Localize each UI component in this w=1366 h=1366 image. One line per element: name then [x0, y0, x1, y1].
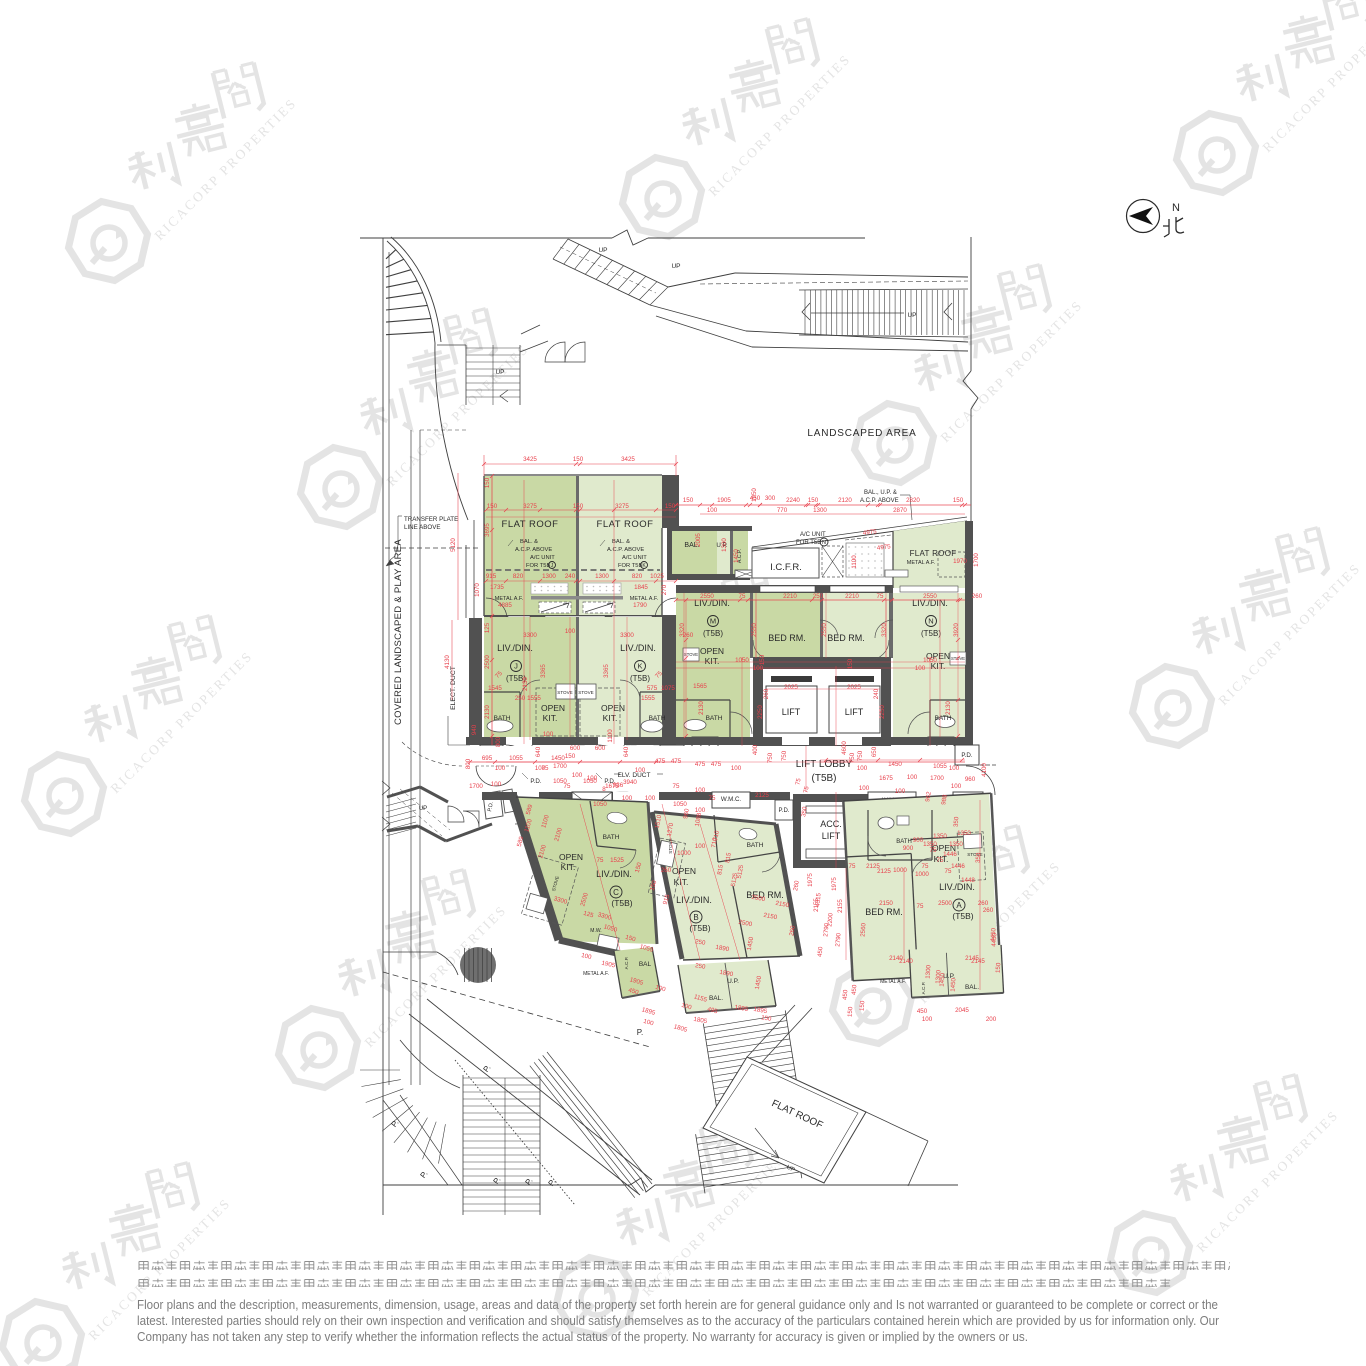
svg-text:3695: 3695 — [484, 523, 491, 537]
svg-text:240: 240 — [873, 688, 880, 699]
svg-text:150: 150 — [847, 658, 854, 669]
svg-text:2155: 2155 — [837, 899, 844, 913]
svg-text:250: 250 — [813, 593, 824, 600]
svg-text:2045: 2045 — [955, 1007, 969, 1014]
svg-text:(T5B): (T5B) — [611, 898, 632, 908]
svg-text:100: 100 — [491, 781, 502, 788]
svg-text:FLAT ROOF: FLAT ROOF — [502, 519, 559, 530]
svg-text:2560: 2560 — [860, 922, 868, 937]
svg-text:800: 800 — [495, 736, 502, 747]
svg-text:3275: 3275 — [615, 503, 629, 510]
svg-text:1050: 1050 — [583, 778, 597, 785]
svg-text:650: 650 — [871, 746, 878, 757]
svg-text:100: 100 — [859, 785, 870, 792]
svg-text:3320: 3320 — [679, 623, 686, 637]
svg-text:260: 260 — [661, 867, 672, 874]
svg-text:BAL., U.P. &: BAL., U.P. & — [864, 490, 897, 496]
svg-text:4100: 4100 — [981, 763, 988, 777]
svg-text:100: 100 — [695, 787, 706, 794]
svg-text:OPEN: OPEN — [672, 866, 696, 876]
svg-text:1700: 1700 — [469, 783, 483, 790]
svg-text:350: 350 — [975, 852, 983, 863]
svg-text:2130: 2130 — [522, 677, 529, 691]
svg-text:STOVE: STOVE — [557, 690, 573, 695]
svg-text:2550: 2550 — [751, 623, 758, 637]
svg-text:1446: 1446 — [943, 851, 957, 858]
svg-text:P.D.: P.D. — [530, 778, 542, 785]
svg-text:(T5B): (T5B) — [812, 773, 837, 784]
svg-text:BED RM.: BED RM. — [865, 907, 903, 917]
svg-text:METAL A.F.: METAL A.F. — [907, 560, 936, 566]
svg-text:A.C.P. ABOVE: A.C.P. ABOVE — [860, 498, 899, 504]
svg-text:A/C UNIT: A/C UNIT — [800, 532, 826, 538]
svg-text:1450: 1450 — [950, 977, 958, 992]
svg-text:1970: 1970 — [953, 558, 967, 565]
svg-text:1450: 1450 — [551, 755, 565, 762]
svg-text:Floor plans and the descriptio: Floor plans and the description, measure… — [137, 1298, 1218, 1312]
svg-text:270: 270 — [661, 584, 668, 595]
svg-text:W.M.C.: W.M.C. — [721, 796, 742, 803]
svg-text:75: 75 — [673, 783, 680, 790]
svg-text:1075: 1075 — [661, 685, 675, 692]
svg-text:2025: 2025 — [784, 684, 798, 691]
svg-text:(T5B): (T5B) — [703, 629, 723, 638]
svg-text:1300: 1300 — [813, 507, 827, 514]
svg-text:2870: 2870 — [893, 507, 907, 514]
svg-text:4450: 4450 — [991, 932, 999, 947]
svg-text:1350: 1350 — [923, 841, 937, 848]
svg-text:100: 100 — [922, 1016, 933, 1023]
svg-text:TRANSFER PLATE: TRANSFER PLATE — [404, 516, 458, 523]
svg-text:P.D.: P.D. — [779, 808, 790, 814]
svg-text:75: 75 — [597, 857, 604, 864]
svg-text:1975: 1975 — [831, 877, 838, 891]
svg-text:640: 640 — [623, 746, 630, 757]
svg-text:BAL. &: BAL. & — [612, 539, 630, 545]
svg-text:2120: 2120 — [838, 497, 852, 504]
svg-text:(T5B): (T5B) — [921, 629, 941, 638]
svg-text:640: 640 — [535, 746, 542, 757]
svg-text:260: 260 — [978, 900, 989, 907]
svg-text:450: 450 — [851, 984, 859, 995]
svg-text:1555: 1555 — [641, 695, 655, 702]
svg-text:820: 820 — [632, 573, 643, 580]
svg-text:1300: 1300 — [595, 573, 609, 580]
svg-text:1700: 1700 — [973, 553, 980, 567]
svg-text:150: 150 — [484, 477, 491, 488]
svg-text:2550: 2550 — [700, 593, 714, 600]
svg-text:150: 150 — [953, 497, 964, 504]
svg-text:3920: 3920 — [953, 623, 960, 637]
svg-text:2820: 2820 — [906, 497, 920, 504]
svg-text:150: 150 — [683, 497, 694, 504]
svg-text:B: B — [693, 913, 698, 922]
svg-text:75: 75 — [930, 847, 937, 854]
svg-text:M.W.: M.W. — [590, 928, 601, 934]
svg-text:4600: 4600 — [841, 741, 848, 755]
svg-text:75: 75 — [922, 863, 929, 870]
svg-text:LIV./DIN.: LIV./DIN. — [497, 643, 533, 653]
svg-text:475: 475 — [671, 758, 682, 765]
svg-text:100: 100 — [622, 795, 633, 802]
svg-text:2125: 2125 — [755, 792, 769, 799]
svg-text:900: 900 — [913, 837, 924, 844]
svg-text:100: 100 — [857, 765, 868, 772]
svg-text:750: 750 — [857, 750, 864, 761]
svg-text:latest. Interested parties sho: latest. Interested parties should rely o… — [137, 1314, 1219, 1328]
svg-text:N: N — [822, 540, 826, 546]
svg-text:350: 350 — [953, 816, 961, 827]
svg-text:LIFT LOBBY: LIFT LOBBY — [796, 759, 853, 770]
svg-text:1545: 1545 — [488, 685, 502, 692]
svg-text:1700: 1700 — [553, 763, 567, 770]
svg-text:960: 960 — [965, 776, 976, 783]
svg-text:A: A — [956, 901, 962, 910]
svg-text:75: 75 — [937, 857, 944, 864]
svg-text:KIT.: KIT. — [543, 713, 558, 723]
svg-text:N: N — [928, 617, 933, 626]
svg-text:150: 150 — [487, 503, 498, 510]
svg-text:100: 100 — [495, 765, 506, 772]
svg-text:75: 75 — [877, 593, 884, 600]
svg-text:(T5B): (T5B) — [689, 923, 710, 933]
svg-text:750: 750 — [767, 752, 774, 763]
svg-text:915: 915 — [486, 573, 497, 580]
svg-text:770: 770 — [777, 507, 788, 514]
svg-text:FOR T5B: FOR T5B — [796, 540, 821, 546]
svg-text:ELECT. DUCT: ELECT. DUCT — [450, 666, 457, 710]
svg-text:UP: UP — [419, 806, 427, 812]
svg-text:3275: 3275 — [523, 503, 537, 510]
svg-text:A.C.P. ABOVE: A.C.P. ABOVE — [515, 547, 552, 553]
svg-text:150: 150 — [995, 962, 1003, 973]
svg-text:150: 150 — [573, 503, 584, 510]
svg-text:1735: 1735 — [490, 584, 504, 591]
svg-text:1565: 1565 — [693, 683, 707, 690]
svg-text:LIV./DIN.: LIV./DIN. — [676, 895, 712, 905]
svg-text:1300: 1300 — [542, 573, 556, 580]
svg-text:A.C.P.: A.C.P. — [624, 957, 629, 970]
svg-text:BATH: BATH — [747, 842, 764, 849]
svg-text:2550: 2550 — [923, 593, 937, 600]
svg-text:2005: 2005 — [695, 533, 702, 547]
svg-text:75: 75 — [917, 903, 924, 910]
svg-text:600: 600 — [570, 745, 581, 752]
svg-text:A.C.P. ABOVE: A.C.P. ABOVE — [607, 547, 644, 553]
svg-text:100: 100 — [695, 843, 706, 850]
svg-text:U.P.: U.P. — [727, 978, 739, 985]
svg-text:450: 450 — [842, 989, 850, 1000]
svg-text:100: 100 — [951, 783, 962, 790]
svg-text:1055: 1055 — [509, 755, 523, 762]
svg-text:KIT.: KIT. — [705, 656, 720, 666]
svg-text:2130: 2130 — [484, 705, 491, 719]
svg-text:2210: 2210 — [783, 593, 797, 600]
svg-text:940: 940 — [471, 724, 478, 735]
svg-text:2155: 2155 — [813, 898, 820, 912]
svg-text:N: N — [1172, 202, 1180, 214]
svg-text:475: 475 — [711, 761, 722, 768]
svg-text:1300: 1300 — [721, 538, 728, 552]
svg-text:ACC.: ACC. — [820, 819, 842, 829]
svg-text:2025: 2025 — [847, 684, 861, 691]
svg-text:475: 475 — [695, 761, 706, 768]
svg-text:BED RM.: BED RM. — [768, 633, 806, 643]
svg-text:LIFT: LIFT — [845, 707, 864, 717]
svg-text:100: 100 — [635, 767, 646, 774]
svg-text:OPEN: OPEN — [559, 852, 583, 862]
svg-text:1100: 1100 — [851, 555, 858, 569]
svg-text:260: 260 — [983, 907, 994, 914]
svg-text:200: 200 — [986, 1016, 997, 1023]
svg-text:OPEN: OPEN — [601, 703, 625, 713]
svg-text:(T5B): (T5B) — [630, 674, 650, 683]
svg-text:100: 100 — [731, 765, 742, 772]
svg-text:400: 400 — [752, 744, 759, 755]
svg-text:1450: 1450 — [733, 549, 740, 563]
svg-text:LANDSCAPED AREA: LANDSCAPED AREA — [807, 428, 916, 439]
svg-text:M: M — [710, 617, 716, 626]
svg-text:2130: 2130 — [945, 701, 952, 715]
svg-text:BATH: BATH — [603, 834, 620, 841]
svg-text:450: 450 — [817, 946, 825, 957]
svg-text:1448: 1448 — [961, 877, 975, 884]
svg-text:1050: 1050 — [673, 801, 687, 808]
svg-text:150: 150 — [808, 497, 819, 504]
svg-text:OPEN: OPEN — [700, 646, 724, 656]
svg-text:100: 100 — [895, 788, 906, 795]
svg-text:820: 820 — [513, 573, 524, 580]
svg-text:4130: 4130 — [444, 655, 451, 669]
svg-text:2250: 2250 — [757, 705, 764, 719]
svg-text:1100: 1100 — [607, 729, 614, 743]
svg-text:FLAT ROOF: FLAT ROOF — [597, 519, 654, 530]
svg-text:1675: 1675 — [879, 775, 893, 782]
svg-text:2210: 2210 — [845, 593, 859, 600]
svg-text:100: 100 — [915, 665, 926, 672]
svg-text:1070: 1070 — [474, 583, 481, 597]
svg-text:UP: UP — [907, 312, 916, 319]
svg-text:150: 150 — [759, 654, 766, 665]
svg-text:COVERED LANDSCAPED & PLAY AREA: COVERED LANDSCAPED & PLAY AREA — [393, 539, 404, 725]
svg-text:3425: 3425 — [621, 456, 635, 463]
svg-text:1000: 1000 — [677, 850, 691, 857]
svg-text:BATH: BATH — [494, 715, 511, 722]
svg-text:P.D.: P.D. — [961, 752, 973, 759]
svg-text:LINE ABOVE: LINE ABOVE — [404, 524, 440, 531]
svg-text:695: 695 — [482, 755, 493, 762]
svg-text:260: 260 — [763, 688, 770, 699]
svg-text:1000: 1000 — [915, 871, 929, 878]
svg-text:1300: 1300 — [925, 964, 933, 979]
svg-text:3320: 3320 — [881, 623, 888, 637]
svg-text:(T5B): (T5B) — [952, 911, 973, 921]
svg-text:3300: 3300 — [620, 632, 634, 639]
svg-text:75: 75 — [709, 795, 716, 802]
svg-text:1975: 1975 — [807, 873, 814, 887]
svg-text:LIV./DIN.: LIV./DIN. — [620, 643, 656, 653]
svg-text:450: 450 — [917, 1008, 928, 1015]
svg-text:150: 150 — [573, 456, 584, 463]
svg-text:LIFT: LIFT — [782, 707, 801, 717]
svg-text:3425: 3425 — [523, 456, 537, 463]
svg-text:300: 300 — [765, 495, 776, 502]
svg-text:1950: 1950 — [751, 488, 758, 502]
svg-text:150: 150 — [565, 753, 576, 760]
svg-text:FOR T5B: FOR T5B — [526, 563, 551, 569]
svg-text:FOR T5B: FOR T5B — [618, 563, 643, 569]
svg-text:A/C UNIT: A/C UNIT — [622, 555, 647, 561]
svg-text:125: 125 — [484, 622, 491, 633]
svg-text:240: 240 — [565, 573, 576, 580]
svg-text:1525: 1525 — [610, 857, 624, 864]
svg-text:A/C UNIT: A/C UNIT — [530, 555, 555, 561]
svg-text:1555: 1555 — [527, 695, 541, 702]
svg-text:100: 100 — [707, 507, 718, 514]
svg-text:3365: 3365 — [540, 664, 547, 678]
svg-text:2145: 2145 — [965, 955, 979, 962]
svg-text:100: 100 — [572, 772, 583, 779]
svg-text:100: 100 — [949, 765, 960, 772]
svg-text:1050: 1050 — [735, 657, 749, 664]
svg-text:A.C.P.: A.C.P. — [921, 982, 926, 995]
svg-text:100: 100 — [753, 665, 764, 672]
svg-text:1350: 1350 — [933, 833, 947, 840]
svg-text:BAL: BAL — [639, 961, 652, 968]
svg-text:1450: 1450 — [939, 972, 947, 987]
svg-text:75: 75 — [564, 783, 571, 790]
svg-text:75: 75 — [542, 765, 549, 772]
svg-text:1000: 1000 — [893, 867, 907, 874]
svg-text:METAL A.F.: METAL A.F. — [583, 971, 609, 977]
svg-text:1055: 1055 — [933, 763, 947, 770]
svg-text:UP: UP — [671, 263, 680, 270]
svg-text:LIFT: LIFT — [822, 831, 841, 841]
svg-text:750: 750 — [781, 750, 788, 761]
svg-text:C: C — [613, 888, 619, 897]
svg-text:2500: 2500 — [938, 900, 952, 907]
svg-text:2150: 2150 — [879, 900, 893, 907]
svg-text:600: 600 — [595, 745, 606, 752]
svg-text:4885: 4885 — [498, 602, 512, 609]
svg-text:1905: 1905 — [717, 497, 731, 504]
svg-text:75: 75 — [739, 593, 746, 600]
svg-text:Company has not taken any step: Company has not taken any step to verify… — [137, 1330, 1028, 1344]
svg-text:2130: 2130 — [698, 701, 705, 715]
svg-text:KIT.: KIT. — [561, 862, 576, 872]
svg-text:STOVE: STOVE — [578, 690, 594, 695]
svg-text:BAL.: BAL. — [709, 995, 723, 1002]
svg-text:1700: 1700 — [930, 775, 944, 782]
svg-text:UP: UP — [598, 247, 607, 254]
svg-text:150: 150 — [859, 1000, 867, 1011]
svg-text:UP: UP — [495, 369, 504, 376]
svg-text:BAL. &: BAL. & — [520, 539, 538, 545]
svg-text:2250: 2250 — [879, 705, 886, 719]
svg-text:936: 936 — [613, 782, 624, 789]
svg-text:P.: P. — [637, 1028, 644, 1037]
svg-text:1025: 1025 — [650, 573, 664, 580]
svg-text:2790: 2790 — [834, 932, 842, 947]
svg-text:100: 100 — [565, 628, 576, 635]
svg-text:2140: 2140 — [889, 955, 903, 962]
svg-text:3300: 3300 — [523, 632, 537, 639]
svg-text:1350: 1350 — [949, 841, 963, 848]
svg-text:J: J — [514, 662, 518, 671]
svg-text:1350: 1350 — [957, 830, 971, 837]
svg-text:LIV./DIN.: LIV./DIN. — [596, 869, 632, 879]
svg-text:2550: 2550 — [821, 623, 828, 637]
svg-text:5120: 5120 — [450, 538, 457, 552]
svg-text:BATH: BATH — [935, 715, 952, 722]
svg-text:I.C.F.R.: I.C.F.R. — [770, 562, 802, 573]
svg-text:575: 575 — [647, 685, 658, 692]
svg-text:900: 900 — [903, 845, 914, 852]
svg-text:3365: 3365 — [603, 664, 610, 678]
svg-text:750: 750 — [849, 752, 856, 763]
svg-text:FLAT ROOF: FLAT ROOF — [910, 549, 957, 558]
svg-text:KIT.: KIT. — [603, 713, 618, 723]
svg-text:BATH: BATH — [649, 715, 666, 722]
svg-text:260: 260 — [972, 593, 983, 600]
svg-text:BAL.: BAL. — [965, 984, 979, 991]
svg-text:BED RM.: BED RM. — [827, 633, 865, 643]
svg-text:1050: 1050 — [593, 801, 607, 808]
svg-text:K: K — [637, 662, 642, 671]
svg-text:2240: 2240 — [786, 497, 800, 504]
svg-text:1446: 1446 — [951, 863, 965, 870]
svg-text:100: 100 — [543, 731, 554, 738]
svg-text:100: 100 — [907, 774, 918, 781]
svg-text:METAL A.F.: METAL A.F. — [880, 979, 906, 985]
svg-text:1050: 1050 — [923, 657, 937, 664]
svg-text:8: 8 — [602, 786, 606, 793]
svg-text:OPEN: OPEN — [541, 703, 565, 713]
svg-text:100: 100 — [645, 795, 656, 802]
svg-text:1845: 1845 — [634, 584, 648, 591]
svg-text:BATH: BATH — [706, 715, 723, 722]
svg-text:75: 75 — [849, 863, 856, 870]
svg-text:1790: 1790 — [633, 602, 647, 609]
svg-text:2125: 2125 — [877, 868, 891, 875]
svg-text:3940: 3940 — [623, 779, 637, 786]
svg-text:150: 150 — [847, 1006, 855, 1017]
svg-text:2790: 2790 — [822, 922, 830, 937]
